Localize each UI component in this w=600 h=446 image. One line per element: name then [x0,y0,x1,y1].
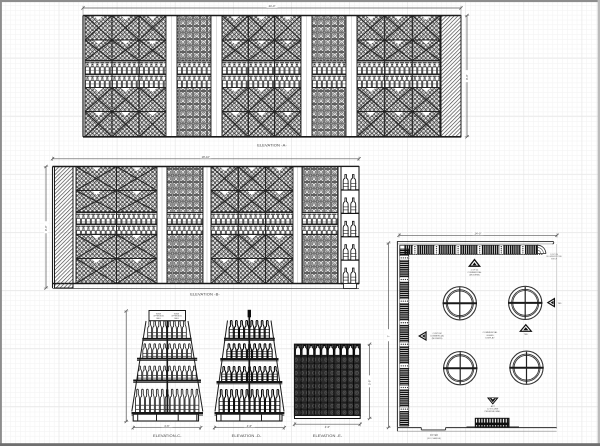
svg-text:ELEVATION -E-: ELEVATION -E- [313,433,343,438]
svg-text:4'-6": 4'-6" [325,425,330,429]
svg-text:24'-0": 24'-0" [475,232,482,236]
svg-text:TBD: TBD [558,303,563,305]
svg-text:4'-6": 4'-6" [247,424,252,428]
svg-text:(MODERN): (MODERN) [432,338,443,340]
svg-text:SHELF: SHELF [551,259,558,261]
svg-text:SALE: SALE [156,317,161,320]
svg-text:COMMERCIAL: COMMERCIAL [430,335,445,338]
svg-text:9'-0": 9'-0" [44,226,48,231]
svg-text:DISPLAY: DISPLAY [485,337,495,340]
svg-text:TBD: TBD [524,334,529,336]
svg-text:(MODERN): (MODERN) [469,275,480,277]
svg-text:24'-0": 24'-0" [269,4,276,8]
svg-text:5'-9": 5'-9" [368,380,372,385]
svg-text:9'-0": 9'-0" [465,74,469,79]
svg-text:SALE: SALE [174,317,179,320]
svg-text:(NO CHANGE): (NO CHANGE) [427,437,441,440]
svg-text:18'-10": 18'-10" [202,155,210,159]
svg-text:ELEVATION -A-: ELEVATION -A- [257,142,287,147]
svg-text:ELEVATION-C-: ELEVATION-C- [153,433,182,438]
svg-text:ELEVATION -B-: ELEVATION -B- [190,291,220,296]
svg-text:ELEVATION -D-: ELEVATION -D- [232,433,262,438]
svg-text:FOYER: FOYER [430,435,438,437]
svg-text:PEDESTAL WALL: PEDESTAL WALL [485,410,502,413]
svg-text:COMMERCIAL: COMMERCIAL [467,271,482,274]
svg-text:4'-6": 4'-6" [164,424,169,428]
svg-text:GLASS: GLASS [486,334,494,337]
svg-text:COMMERCIAL: COMMERCIAL [483,331,499,334]
